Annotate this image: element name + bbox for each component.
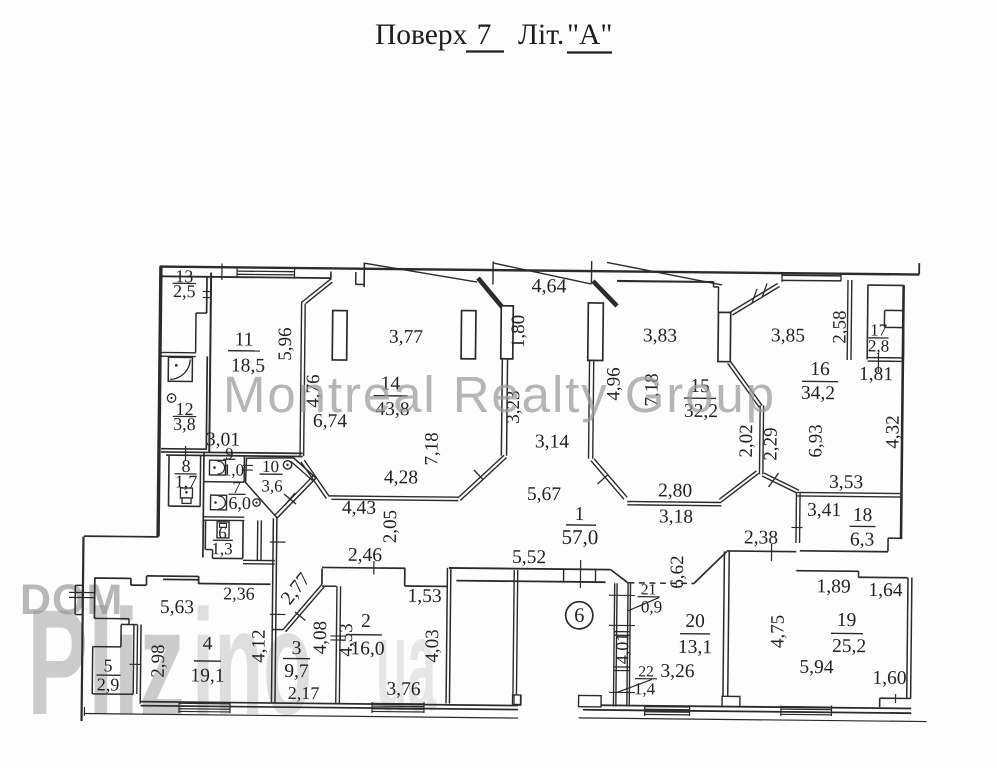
svg-text:2,80: 2,80	[658, 480, 692, 501]
svg-text:3,83: 3,83	[643, 325, 677, 346]
svg-text:4: 4	[203, 633, 213, 654]
svg-text:1,53: 1,53	[407, 586, 441, 607]
svg-text:2,9: 2,9	[97, 674, 120, 694]
svg-text:6: 6	[574, 605, 584, 627]
svg-text:6,93: 6,93	[805, 424, 826, 457]
svg-text:2,05: 2,05	[380, 510, 401, 543]
svg-text:11: 11	[235, 329, 254, 350]
svg-text:2,29: 2,29	[760, 427, 781, 460]
svg-text:6,3: 6,3	[850, 529, 875, 550]
svg-text:13,1: 13,1	[678, 637, 712, 658]
svg-text:Літ.: Літ.	[518, 19, 564, 51]
svg-text:2,58: 2,58	[829, 310, 850, 343]
svg-text:"А": "А"	[567, 19, 612, 51]
svg-text:4,75: 4,75	[767, 615, 788, 648]
svg-text:2: 2	[361, 611, 371, 632]
svg-text:1,0: 1,0	[223, 460, 244, 479]
svg-text:3,14: 3,14	[535, 431, 570, 452]
svg-text:3,8: 3,8	[173, 414, 196, 434]
svg-text:2,8: 2,8	[868, 336, 889, 355]
svg-text:2,46: 2,46	[348, 545, 383, 566]
svg-text:5,67: 5,67	[527, 484, 562, 505]
svg-text:34,2: 34,2	[801, 383, 835, 404]
svg-text:6,62: 6,62	[667, 555, 688, 588]
svg-text:5,63: 5,63	[160, 597, 194, 618]
svg-text:1,81: 1,81	[859, 364, 893, 385]
svg-text:19,1: 19,1	[190, 665, 224, 686]
svg-text:5: 5	[103, 655, 112, 675]
svg-text:3,18: 3,18	[659, 506, 693, 527]
svg-text:1: 1	[575, 504, 585, 525]
svg-text:4,01: 4,01	[612, 633, 632, 665]
svg-text:2,02: 2,02	[736, 424, 757, 457]
svg-text:5,94: 5,94	[799, 657, 834, 678]
svg-text:4,28: 4,28	[384, 467, 418, 488]
svg-text:3,26: 3,26	[660, 661, 695, 682]
svg-text:ua: ua	[376, 591, 437, 738]
svg-text:3,85: 3,85	[771, 325, 805, 346]
svg-text:3,41: 3,41	[807, 500, 841, 521]
svg-text:3,53: 3,53	[829, 472, 863, 493]
svg-text:DOM: DOM	[20, 576, 123, 624]
svg-text:Поверх: Поверх	[375, 19, 468, 51]
svg-text:9,7: 9,7	[284, 661, 309, 682]
svg-text:7: 7	[477, 19, 492, 51]
svg-text:22: 22	[638, 663, 654, 680]
svg-text:2,38: 2,38	[744, 527, 778, 548]
svg-text:25,2: 25,2	[832, 636, 866, 657]
svg-text:2,17: 2,17	[288, 683, 320, 703]
svg-text:2,36: 2,36	[223, 583, 255, 603]
svg-text:3,77: 3,77	[389, 327, 424, 348]
svg-text:3,01: 3,01	[206, 429, 240, 450]
svg-text:2,98: 2,98	[148, 644, 169, 677]
svg-text:1,60: 1,60	[872, 668, 906, 689]
svg-text:18: 18	[853, 505, 873, 526]
svg-text:4,08: 4,08	[310, 621, 331, 654]
svg-text:1,89: 1,89	[816, 576, 850, 597]
svg-text:3,6: 3,6	[261, 476, 282, 495]
svg-text:1,64: 1,64	[868, 580, 903, 601]
svg-text:3,76: 3,76	[386, 679, 421, 700]
svg-text:4,53: 4,53	[336, 623, 357, 656]
svg-text:21: 21	[641, 581, 657, 598]
svg-text:16: 16	[810, 359, 830, 380]
svg-text:4,03: 4,03	[422, 629, 443, 662]
svg-text:1,3: 1,3	[211, 539, 232, 558]
svg-text:4,32: 4,32	[882, 415, 903, 448]
svg-text:19: 19	[837, 610, 857, 631]
svg-text:20: 20	[685, 611, 705, 632]
svg-text:5,52: 5,52	[512, 547, 546, 568]
svg-text:5,96: 5,96	[275, 327, 296, 360]
svg-text:10: 10	[262, 457, 279, 476]
svg-text:4,43: 4,43	[342, 498, 376, 519]
svg-text:1,7: 1,7	[175, 471, 198, 491]
svg-text:Montreal Realty Group: Montreal Realty Group	[223, 366, 776, 423]
svg-text:2,5: 2,5	[173, 281, 196, 301]
svg-text:3: 3	[292, 638, 302, 659]
svg-text:6,0: 6,0	[228, 493, 251, 513]
svg-text:4,64: 4,64	[531, 275, 566, 297]
svg-text:1,80: 1,80	[508, 315, 529, 348]
svg-text:7,18: 7,18	[421, 432, 442, 465]
svg-text:4,12: 4,12	[248, 629, 269, 662]
svg-text:57,0: 57,0	[561, 525, 598, 549]
